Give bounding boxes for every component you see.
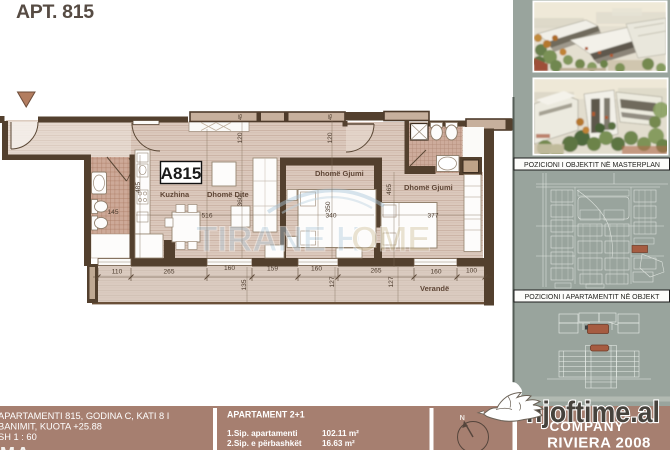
svg-text:360: 360 [237, 195, 244, 206]
svg-text:POZICIONI I APARTAMENTIT NË OB: POZICIONI I APARTAMENTIT NË OBJEKT [525, 293, 661, 301]
svg-text:102.11 m²: 102.11 m² [322, 429, 359, 438]
svg-text:APT. 815: APT. 815 [16, 1, 94, 23]
svg-text:njoftime.al: njoftime.al [526, 396, 660, 429]
svg-text:Verandë: Verandë [420, 284, 449, 293]
svg-text:N: N [460, 413, 465, 422]
svg-text:377: 377 [427, 213, 438, 220]
svg-text:MA: MA [0, 444, 31, 450]
svg-text:APARTAMENT 2+1: APARTAMENT 2+1 [227, 410, 305, 420]
svg-text:127: 127 [388, 276, 395, 287]
svg-text:16.63 m²: 16.63 m² [322, 439, 355, 448]
svg-text:APARTAMENTI 815, GODINA C, KAT: APARTAMENTI 815, GODINA C, KATI 8 I [0, 411, 169, 421]
svg-text:120: 120 [237, 132, 244, 143]
svg-text:BANIMIT, KUOTA +25.88: BANIMIT, KUOTA +25.88 [0, 422, 102, 432]
svg-text:TIRANE H: TIRANE H [196, 220, 361, 259]
svg-text:OME: OME [351, 220, 431, 259]
svg-text:Dhomë Gjumi: Dhomë Gjumi [315, 169, 364, 178]
svg-text:350: 350 [325, 201, 332, 212]
svg-text:135: 135 [241, 279, 248, 290]
svg-text:Dhomë Gjumi: Dhomë Gjumi [404, 183, 453, 192]
svg-text:POZICIONI I OBJEKTIT NË MASTER: POZICIONI I OBJEKTIT NË MASTERPLAN [524, 161, 660, 169]
svg-text:110: 110 [112, 269, 123, 276]
svg-text:265: 265 [370, 268, 381, 275]
svg-text:160: 160 [311, 266, 322, 273]
svg-text:145: 145 [107, 209, 118, 216]
svg-text:127: 127 [329, 276, 336, 287]
svg-text:516: 516 [201, 213, 212, 220]
svg-text:485: 485 [135, 182, 142, 193]
svg-text:465: 465 [386, 184, 393, 195]
svg-text:265: 265 [163, 269, 174, 276]
svg-text:SH 1 : 60: SH 1 : 60 [0, 432, 37, 442]
svg-text:RIVIERA 2008: RIVIERA 2008 [547, 435, 651, 450]
svg-text:100: 100 [466, 268, 477, 275]
svg-text:120: 120 [327, 132, 334, 143]
svg-text:160: 160 [224, 265, 235, 272]
svg-text:45: 45 [238, 114, 244, 120]
svg-text:340: 340 [325, 213, 336, 220]
svg-text:160: 160 [430, 269, 441, 276]
svg-text:45: 45 [328, 114, 334, 120]
svg-text:1.Sip. apartamenti: 1.Sip. apartamenti [227, 429, 298, 438]
svg-text:Kuzhina: Kuzhina [160, 190, 190, 199]
svg-text:2.Sip. e përbashkët: 2.Sip. e përbashkët [227, 439, 302, 448]
svg-text:159: 159 [267, 266, 278, 273]
svg-text:A815: A815 [161, 164, 202, 183]
